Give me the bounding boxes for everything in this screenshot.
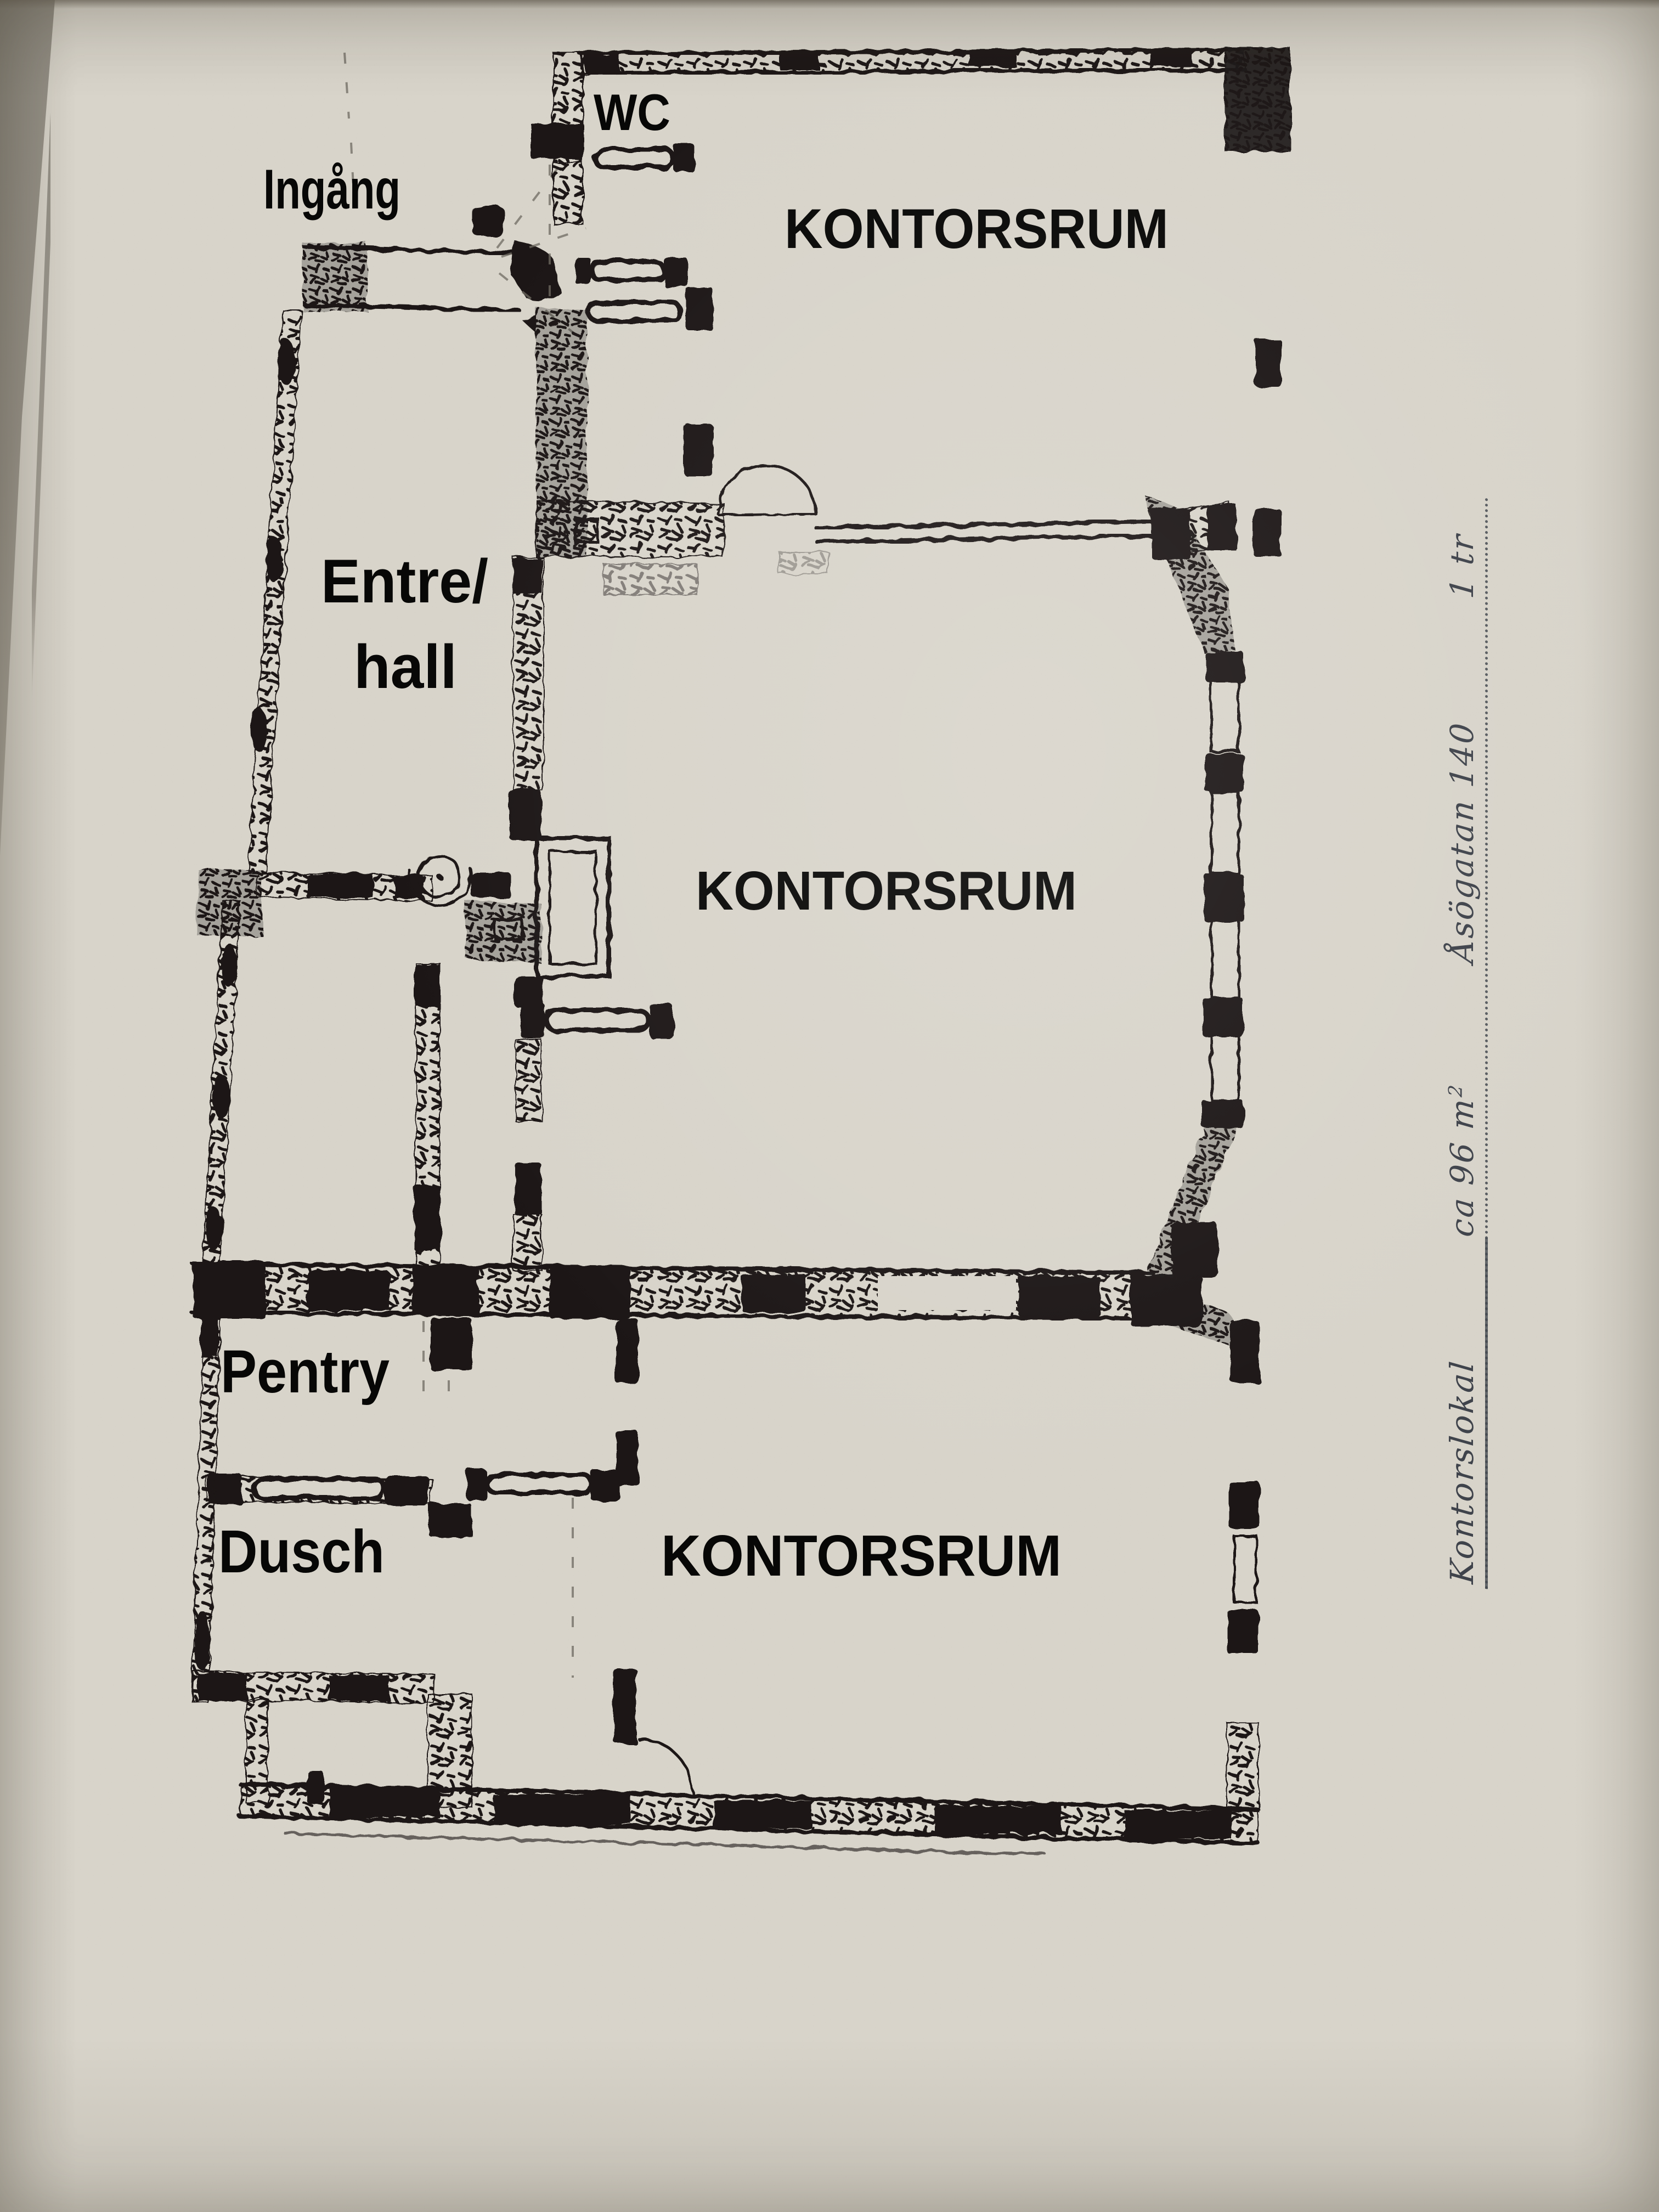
annotation-superscript: 2: [1445, 1084, 1467, 1098]
floor-plan-drawing: Ingång WC KONTORSRUM Entre/ hall KONTORS…: [0, 0, 1659, 2212]
handwritten-annotation: Kontorslokal ca 96 m2 Åsögatan 140 1 tr: [1422, 492, 1488, 1589]
annotation-address: Åsögatan 140: [1443, 720, 1481, 964]
annotation-floor: 1 tr: [1443, 532, 1481, 600]
paper-speckle-noise: [0, 0, 1659, 2212]
annotation-underline: [1485, 1238, 1488, 1589]
annotation-word-kontorslokal: Kontorslokal: [1443, 1358, 1481, 1585]
annotation-area: ca 96 m2: [1443, 1084, 1481, 1238]
photographed-floor-plan-page: Ingång WC KONTORSRUM Entre/ hall KONTORS…: [0, 0, 1659, 2212]
